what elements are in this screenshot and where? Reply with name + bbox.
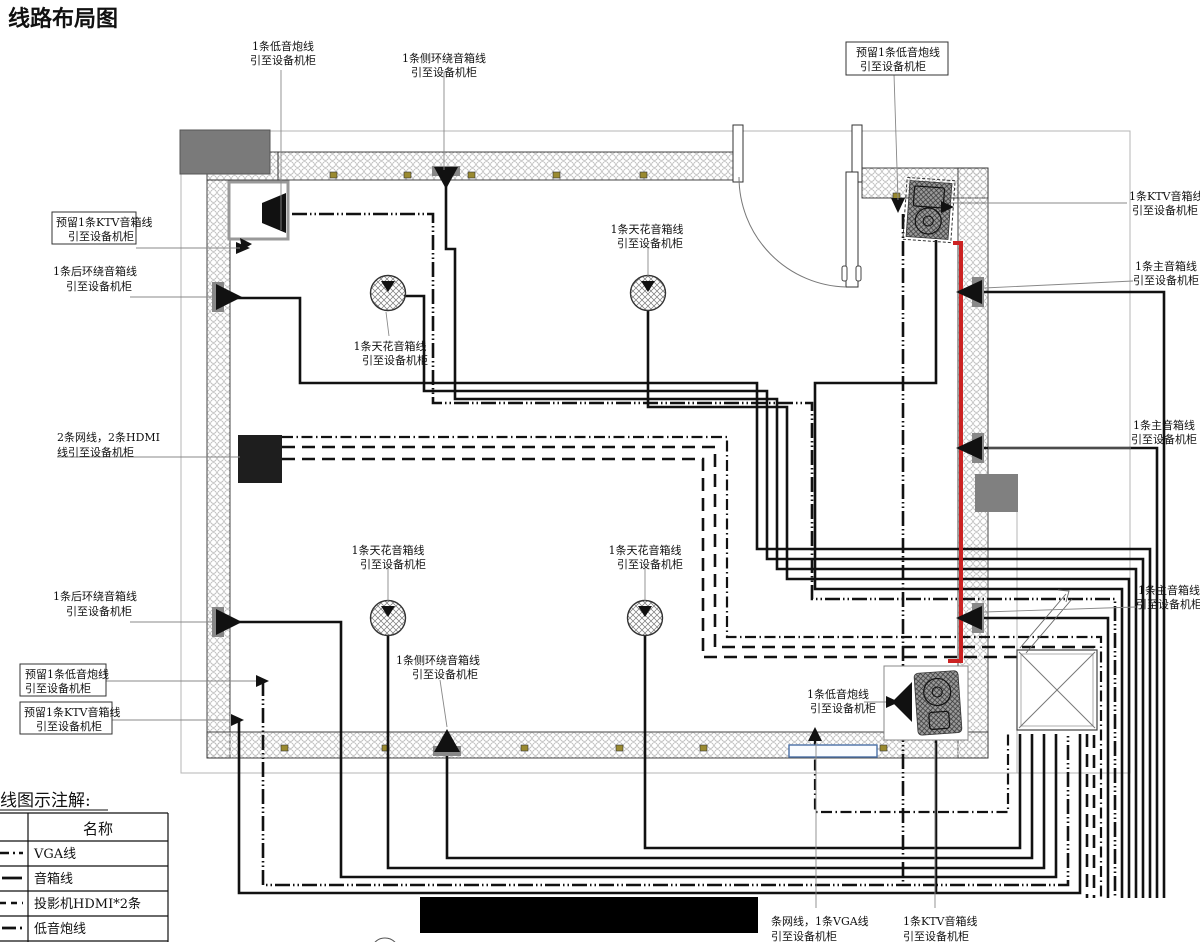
svg-text:预留1条KTV音箱线: 预留1条KTV音箱线 bbox=[56, 215, 153, 229]
ceiling-speaker-icon bbox=[371, 601, 406, 636]
svg-text:引至设备机柜: 引至设备机柜 bbox=[68, 229, 134, 243]
callout-reserved-sub-lower: 预留1条低音炮线 引至设备机柜 bbox=[20, 664, 109, 696]
svg-text:预留1条低音炮线: 预留1条低音炮线 bbox=[25, 667, 109, 681]
legend-title: 线图示注解: bbox=[0, 791, 91, 811]
page-title: 线路布局图 bbox=[8, 6, 118, 31]
legend-header: 名称 bbox=[83, 820, 113, 838]
callout-side-surround-top: 1条侧环绕音箱线 引至设备机柜 bbox=[402, 51, 486, 79]
svg-text:1条低音炮线: 1条低音炮线 bbox=[252, 39, 314, 53]
legend-row-sub: 低音炮线 bbox=[34, 921, 86, 937]
redacted-block bbox=[420, 897, 758, 933]
callout-subwoofer-top: 1条低音炮线 引至设备机柜 bbox=[250, 39, 316, 67]
callout-ktv-right: 1条KTV音箱线 引至设备机柜 bbox=[1129, 189, 1200, 217]
legend: 线图示注解: 名称 VGA线 音箱线 投影机HDMI*2条 低音炮线 bbox=[0, 783, 173, 942]
speakers bbox=[212, 166, 984, 756]
callout-ktv-bottom: 1条KTV音箱线 引至设备机柜 bbox=[903, 914, 978, 942]
callout-ceiling-ul: 1条天花音箱线 引至设备机柜 bbox=[354, 339, 429, 367]
wiring-layout-drawing: 1条低音炮线 引至设备机柜 1条侧环绕音箱线 引至设备机柜 预留1条低音炮线 引… bbox=[0, 0, 1200, 942]
svg-text:预留1条低音炮线: 预留1条低音炮线 bbox=[856, 45, 940, 59]
svg-text:引至设备机柜: 引至设备机柜 bbox=[412, 667, 478, 681]
room-walls bbox=[207, 152, 988, 758]
svg-text:1条天花音箱线: 1条天花音箱线 bbox=[352, 543, 425, 557]
svg-text:引至设备机柜: 引至设备机柜 bbox=[66, 604, 132, 618]
svg-text:引至设备机柜: 引至设备机柜 bbox=[617, 236, 683, 250]
callout-reserved-sub-top: 预留1条低音炮线 引至设备机柜 bbox=[846, 42, 948, 75]
svg-text:1条主音箱线: 1条主音箱线 bbox=[1138, 583, 1200, 597]
wall-blocks bbox=[281, 172, 900, 751]
svg-text:1条主音箱线: 1条主音箱线 bbox=[1135, 259, 1197, 273]
svg-text:引至设备机柜: 引至设备机柜 bbox=[25, 681, 91, 695]
callout-subwoofer-bottom: 1条低音炮线 引至设备机柜 bbox=[807, 687, 876, 715]
callout-ceiling-lr: 1条天花音箱线 引至设备机柜 bbox=[609, 543, 684, 571]
svg-text:1条低音炮线: 1条低音炮线 bbox=[807, 687, 869, 701]
svg-text:1条天花音箱线: 1条天花音箱线 bbox=[354, 339, 427, 353]
svg-text:1条天花音箱线: 1条天花音箱线 bbox=[609, 543, 682, 557]
svg-text:2条网线，2条HDMI: 2条网线，2条HDMI bbox=[57, 430, 160, 444]
svg-text:引至设备机柜: 引至设备机柜 bbox=[903, 929, 969, 942]
column-block bbox=[180, 130, 270, 174]
svg-text:引至设备机柜: 引至设备机柜 bbox=[617, 557, 683, 571]
callout-reserved-ktv-lower: 预留1条KTV音箱线 引至设备机柜 bbox=[20, 702, 121, 734]
legend-row-speaker: 音箱线 bbox=[34, 871, 73, 887]
svg-text:引至设备机柜: 引至设备机柜 bbox=[1136, 597, 1200, 611]
floor-outlet-shelf bbox=[789, 745, 877, 757]
svg-text:引至设备机柜: 引至设备机柜 bbox=[1131, 432, 1197, 446]
callout-ceiling-ll: 1条天花音箱线 引至设备机柜 bbox=[352, 543, 427, 571]
callout-reserved-ktv-upper: 预留1条KTV音箱线 引至设备机柜 bbox=[52, 212, 153, 244]
callout-main-right-1: 1条主音箱线 引至设备机柜 bbox=[1133, 259, 1199, 287]
svg-text:引至设备机柜: 引至设备机柜 bbox=[1133, 273, 1199, 287]
callout-main-right-3: 1条主音箱线 引至设备机柜 bbox=[1136, 583, 1200, 611]
svg-text:引至设备机柜: 引至设备机柜 bbox=[250, 53, 316, 67]
svg-text:引至设备机柜: 引至设备机柜 bbox=[36, 719, 102, 733]
callout-ceiling-ur: 1条天花音箱线 引至设备机柜 bbox=[611, 222, 684, 250]
svg-text:引至设备机柜: 引至设备机柜 bbox=[362, 353, 428, 367]
ceiling-speaker-icon bbox=[371, 276, 406, 311]
callout-network-hdmi: 2条网线，2条HDMI 线引至设备机柜 bbox=[57, 430, 160, 459]
ceiling-speaker-icon bbox=[631, 276, 666, 311]
svg-text:1条后环绕音箱线: 1条后环绕音箱线 bbox=[53, 264, 137, 278]
svg-text:引至设备机柜: 引至设备机柜 bbox=[360, 557, 426, 571]
svg-text:1条KTV音箱线: 1条KTV音箱线 bbox=[1129, 189, 1200, 203]
svg-text:引至设备机柜: 引至设备机柜 bbox=[66, 279, 132, 293]
callout-side-surround-bottom: 1条侧环绕音箱线 引至设备机柜 bbox=[396, 653, 480, 681]
svg-text:预留1条KTV音箱线: 预留1条KTV音箱线 bbox=[24, 705, 121, 719]
red-conduit-line bbox=[948, 243, 961, 661]
door-swing-arc bbox=[739, 177, 846, 287]
svg-text:引至设备机柜: 引至设备机柜 bbox=[411, 65, 477, 79]
svg-text:1条侧环绕音箱线: 1条侧环绕音箱线 bbox=[402, 51, 486, 65]
callout-rear-surround-upper: 1条后环绕音箱线 引至设备机柜 bbox=[53, 264, 137, 293]
grid-bubble bbox=[371, 938, 399, 942]
legend-row-vga: VGA线 bbox=[33, 847, 76, 862]
svg-text:引至设备机柜: 引至设备机柜 bbox=[810, 701, 876, 715]
ceiling-speaker-icon bbox=[628, 601, 663, 636]
legend-row-hdmi: 投影机HDMI*2条 bbox=[34, 896, 141, 912]
svg-text:引至设备机柜: 引至设备机柜 bbox=[1132, 203, 1198, 217]
shaft-crossed-box bbox=[1017, 590, 1097, 730]
svg-text:引至设备机柜: 引至设备机柜 bbox=[860, 59, 926, 73]
door bbox=[733, 125, 862, 287]
svg-text:1条侧环绕音箱线: 1条侧环绕音箱线 bbox=[396, 653, 480, 667]
callout-rear-surround-lower: 1条后环绕音箱线 引至设备机柜 bbox=[53, 589, 137, 618]
svg-text:引至设备机柜: 引至设备机柜 bbox=[771, 929, 837, 942]
svg-text:线引至设备机柜: 线引至设备机柜 bbox=[57, 445, 134, 459]
callout-network-vga-bottom: 条网线，1条VGA线 引至设备机柜 bbox=[771, 914, 869, 942]
display-unit bbox=[238, 435, 282, 483]
svg-text:1条后环绕音箱线: 1条后环绕音箱线 bbox=[53, 589, 137, 603]
equipment-box bbox=[975, 474, 1018, 512]
svg-text:1条主音箱线: 1条主音箱线 bbox=[1133, 418, 1195, 432]
svg-text:条网线，1条VGA线: 条网线，1条VGA线 bbox=[771, 914, 869, 928]
svg-text:1条天花音箱线: 1条天花音箱线 bbox=[611, 222, 684, 236]
svg-text:1条KTV音箱线: 1条KTV音箱线 bbox=[903, 914, 978, 928]
